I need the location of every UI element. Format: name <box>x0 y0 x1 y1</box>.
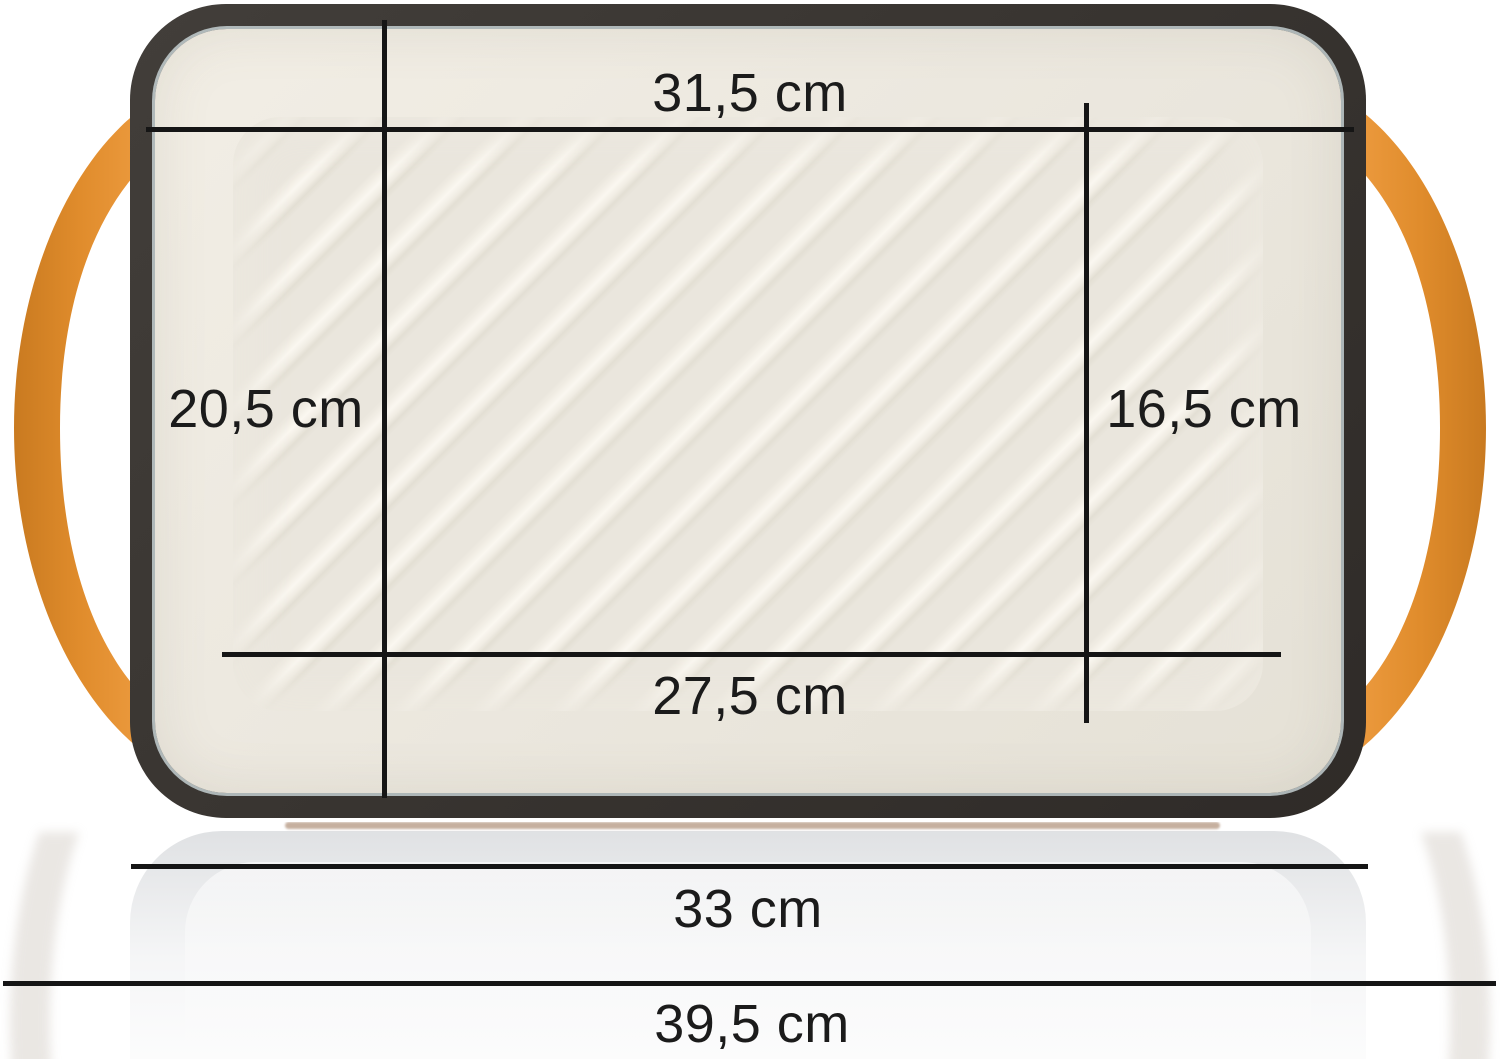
dim-line-pan-body-width <box>131 864 1368 869</box>
dim-label-overall-width: 39,5 cm <box>654 993 850 1055</box>
dim-line-left-inner-height <box>382 20 387 798</box>
product-dimension-image: 31,5 cm 20,5 cm 16,5 cm 27,5 cm 33 cm 39… <box>0 0 1500 1059</box>
dim-label-top-inner-width: 31,5 cm <box>652 62 848 124</box>
dim-label-right-inner-height: 16,5 cm <box>1106 378 1302 440</box>
dim-line-bottom-inner-width <box>222 652 1281 657</box>
dim-label-bottom-inner-width: 27,5 cm <box>652 665 848 727</box>
dim-label-pan-body-width: 33 cm <box>673 878 823 940</box>
dim-line-top-inner-width <box>146 127 1354 132</box>
dim-line-overall-width <box>3 981 1496 986</box>
dim-line-right-inner-height <box>1084 103 1089 723</box>
dim-label-left-inner-height: 20,5 cm <box>168 378 364 440</box>
